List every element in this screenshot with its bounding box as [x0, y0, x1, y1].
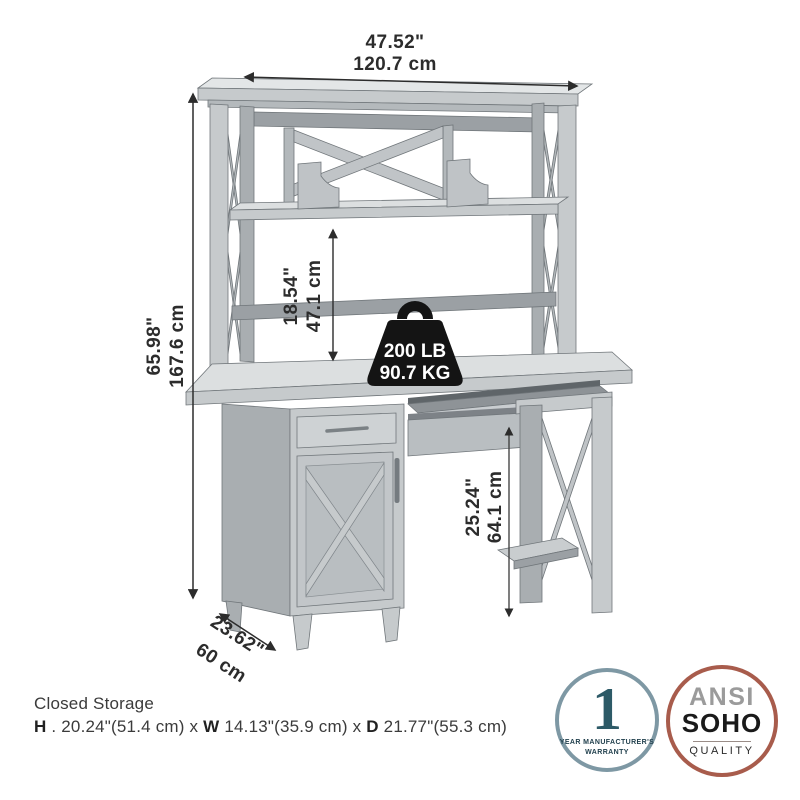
- soho-label: SOHO: [682, 710, 763, 737]
- door-handle: [395, 458, 400, 503]
- w-label: W: [203, 717, 219, 736]
- dimension-depth: 23.62" 60 cm: [192, 612, 275, 688]
- badge-divider: [693, 741, 751, 742]
- storage-cabinet: [222, 404, 404, 650]
- hutch-shelf: [230, 197, 568, 220]
- weight-kilograms-label: 90.7 KG: [380, 363, 451, 384]
- overall-height-cm: 167.6 cm: [167, 304, 188, 388]
- ansi-label: ANSI: [689, 685, 755, 711]
- dimension-knee-clearance: 25.24" 64.1 cm: [463, 428, 509, 616]
- weight-capacity-icon: 200 LB 90.7 KG: [367, 306, 462, 386]
- hutch-left-side: [210, 104, 254, 374]
- hutch-clearance-inches: 18.54": [281, 267, 302, 326]
- h-value: . 20.24"(51.4 cm) x: [46, 717, 203, 736]
- warranty-caption: YEAR MANUFACTURER'S WARRANTY: [560, 738, 654, 758]
- desk-x-leg-right: [516, 392, 612, 613]
- quality-label: QUALITY: [689, 745, 754, 757]
- d-value: 21.77"(55.3 cm): [379, 717, 507, 736]
- file-organizer-right: [447, 159, 488, 207]
- overall-width-inches: 47.52": [366, 32, 425, 53]
- hutch-top-back-rail: [254, 112, 540, 132]
- w-value: 14.13"(35.9 cm) x: [219, 717, 366, 736]
- ansi-soho-quality-badge: ANSI SOHO QUALITY: [666, 665, 778, 777]
- furniture-illustration: 200 LB 90.7 KG: [0, 0, 800, 800]
- desk-low-shelf: [498, 538, 578, 569]
- hutch-right-side: [532, 103, 576, 369]
- weight-pounds-label: 200 LB: [384, 341, 446, 362]
- product-dimension-diagram: 200 LB 90.7 KG: [0, 0, 800, 800]
- closed-storage-dimensions: H . 20.24"(51.4 cm) x W 14.13"(35.9 cm) …: [34, 715, 507, 738]
- desk-base: [222, 380, 612, 650]
- warranty-badge: 1 YEAR MANUFACTURER'S WARRANTY: [555, 668, 659, 772]
- knee-clearance-inches: 25.24": [463, 478, 484, 537]
- cabinet-foot-left: [293, 614, 312, 650]
- closed-storage-note: Closed Storage H . 20.24"(51.4 cm) x W 1…: [34, 692, 507, 738]
- overall-width-cm: 120.7 cm: [353, 54, 437, 75]
- dimension-overall-height: 65.98" 167.6 cm: [144, 94, 193, 598]
- warranty-years-number: 1: [592, 684, 622, 735]
- dimension-hutch-clearance: 18.54" 47.1 cm: [281, 230, 333, 360]
- warranty-caption-line1: YEAR MANUFACTURER'S: [560, 738, 654, 748]
- warranty-caption-line2: WARRANTY: [560, 748, 654, 758]
- hutch-clearance-cm: 47.1 cm: [304, 260, 325, 333]
- overall-height-inches: 65.98": [144, 317, 165, 376]
- cabinet-foot-right: [382, 607, 400, 642]
- d-label: D: [366, 717, 378, 736]
- dimension-overall-width: 47.52" 120.7 cm: [245, 32, 577, 86]
- knee-clearance-cm: 64.1 cm: [485, 471, 506, 544]
- closed-storage-title: Closed Storage: [34, 692, 507, 715]
- h-label: H: [34, 717, 46, 736]
